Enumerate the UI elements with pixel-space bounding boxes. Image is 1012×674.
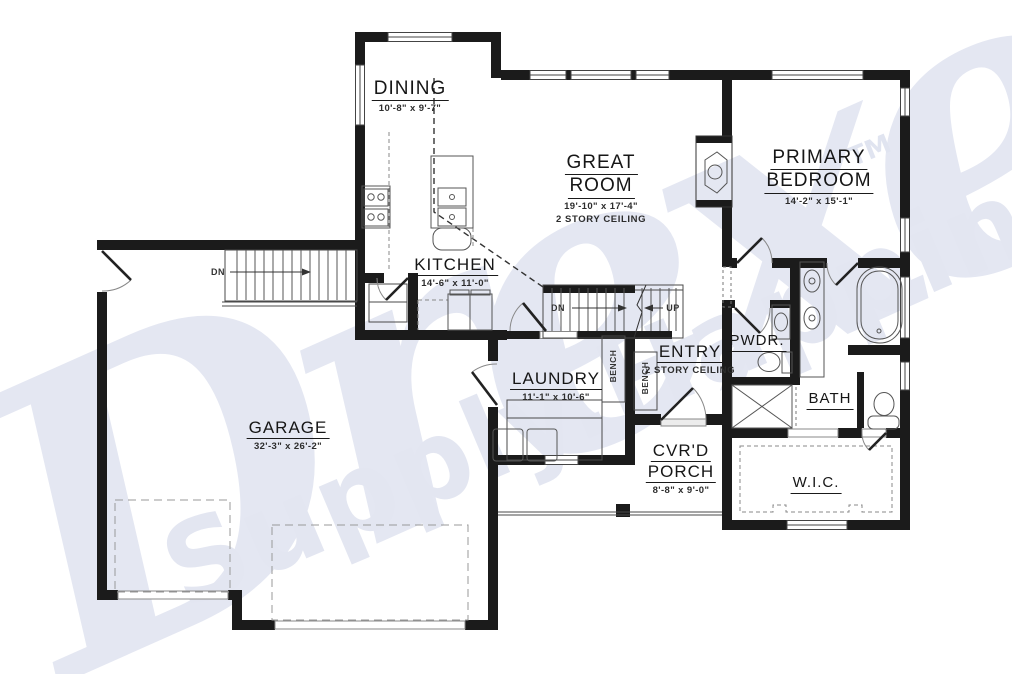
wic-label: W.I.C.: [791, 474, 842, 494]
dining-label: DINING 10'-8" x 9'-7": [372, 78, 449, 115]
door-front-entry: [661, 388, 693, 420]
door-pwdr: [735, 308, 760, 333]
pwdr-toilet-icon: [758, 352, 792, 373]
laundry-label: LAUNDRY 11'-1" x 10'-6": [510, 369, 602, 404]
opening-sill: [788, 429, 838, 437]
room-name: KITCHEN: [412, 255, 498, 276]
garage-door-track: [115, 500, 230, 592]
stair-up-label: UP: [666, 303, 680, 313]
garage-stair-dn-label: DN: [211, 267, 225, 277]
up-arrowhead: [644, 305, 653, 312]
fireplace-icon: [696, 136, 732, 207]
thresholds: [118, 332, 886, 630]
room-name: ROOM: [567, 175, 634, 198]
bath-label: BATH: [807, 390, 854, 410]
door-primary-bath: [836, 263, 858, 285]
sink-icon: [438, 188, 466, 206]
stair-landing: [369, 284, 407, 322]
room-dims: 10'-8" x 9'-7": [372, 104, 449, 115]
floor-plan-page: Drexel TM Supply.Happiness: [0, 0, 1012, 674]
room-name: LAUNDRY: [510, 369, 602, 390]
sink-icon: [804, 270, 820, 292]
bench-entry-label: BENCH: [640, 362, 650, 395]
great-room-label: GREAT ROOM 19'-10" x 17'-4" 2 STORY CEIL…: [556, 152, 646, 226]
room-name: PORCH: [646, 462, 716, 483]
garage-label: GARAGE 32'-3" x 26'-2": [247, 418, 330, 453]
room-dims: 8'-8" x 9'-0": [646, 486, 716, 497]
bench-laundry-label: BENCH: [608, 350, 618, 383]
room-name: CVR'D: [651, 441, 711, 462]
door-garage-service: [102, 251, 131, 280]
room-name: PRIMARY: [770, 147, 867, 170]
entry-label: ENTRY 2 STORY CEILING: [645, 342, 735, 377]
room-name: GREAT: [564, 152, 637, 175]
room-dims: 14'-6" x 11'-0": [412, 279, 498, 290]
sink-icon: [804, 307, 820, 329]
room-note: 2 STORY CEILING: [645, 366, 735, 377]
walls: [97, 32, 910, 630]
kitchen-label: KITCHEN 14'-6" x 11'-0": [412, 255, 498, 290]
door-primary-bedroom: [737, 238, 762, 263]
opening-sill: [540, 332, 577, 339]
room-name: BATH: [807, 391, 854, 410]
primary-bedroom-label: PRIMARY BEDROOM 14'-2" x 15'-1": [764, 147, 873, 207]
counter-dashed: [418, 300, 448, 330]
room-name: DINING: [372, 78, 449, 101]
kitchen-island: [431, 156, 473, 250]
stair-dn-label: DN: [551, 303, 565, 313]
room-name: GARAGE: [247, 418, 330, 439]
door-garage-laundry: [472, 372, 497, 405]
floor-plan-drawing: [0, 0, 1012, 674]
room-dims: 14'-2" x 15'-1": [764, 197, 873, 208]
shower-icon: [732, 385, 792, 428]
room-name: BEDROOM: [764, 170, 873, 193]
stairs-garage: [230, 250, 346, 300]
door-sill: [661, 419, 706, 426]
laundry-counter: [507, 400, 602, 460]
room-dims: 19'-10" x 17'-4": [556, 202, 646, 213]
cvrd-porch-label: CVR'D PORCH 8'-8" x 9'-0": [646, 441, 716, 497]
vanity-icon: [800, 262, 824, 377]
room-name: PWDR.: [728, 333, 787, 352]
dn-arrowhead: [618, 305, 627, 312]
room-dims: 11'-1" x 10'-6": [510, 393, 602, 404]
room-name: W.I.C.: [791, 475, 842, 494]
pwdr-label: PWDR.: [728, 332, 787, 352]
bath-toilet-icon: [868, 393, 899, 430]
bathtub-icon: [857, 267, 902, 343]
room-dims: 32'-3" x 26'-2": [247, 442, 330, 453]
garage-door-panel: [275, 621, 465, 629]
room-name: ENTRY: [657, 342, 723, 363]
stair-break-line: [634, 285, 646, 338]
room-note: 2 STORY CEILING: [556, 215, 646, 226]
garage-door-track: [272, 525, 468, 620]
refrigerator-icon: [448, 290, 492, 330]
door-basement-landing: [386, 278, 408, 300]
range-icon: [362, 186, 390, 228]
